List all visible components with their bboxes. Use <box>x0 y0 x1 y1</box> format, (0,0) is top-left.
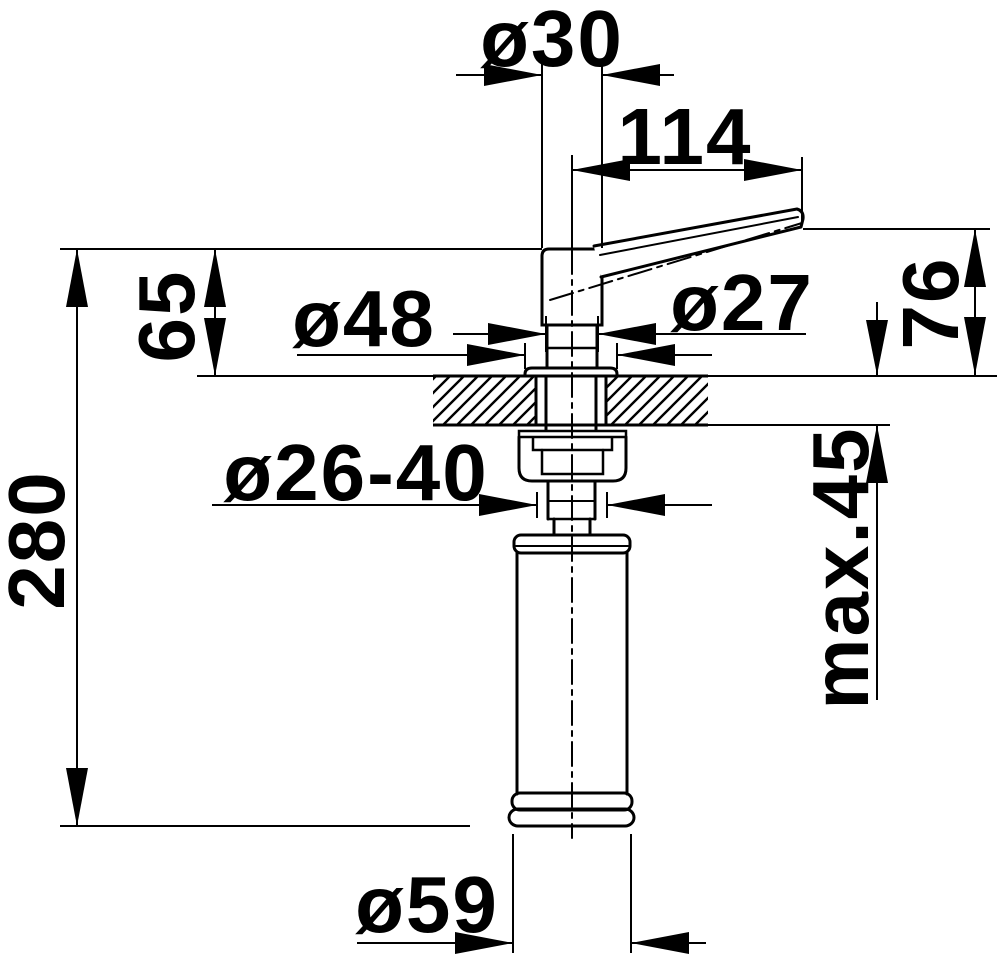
arrow-dia59-right <box>631 932 689 954</box>
dimension-labels: ø30 114 ø27 ø48 ø26-40 ø59 280 65 76 max… <box>0 0 975 949</box>
arrow-114-right <box>744 159 802 181</box>
label-spout-height-above-counter: 76 <box>886 257 975 350</box>
countertop-hatch-left <box>433 377 536 424</box>
label-max-counter-thickness: max.45 <box>796 426 885 709</box>
label-head-height: 65 <box>122 270 211 363</box>
label-overall-height: 280 <box>0 470 81 609</box>
arrow-280-bottom <box>66 768 88 826</box>
arrow-dia27-right <box>598 323 656 345</box>
label-flange-diameter: ø48 <box>292 274 436 363</box>
arrow-max45-down <box>866 320 888 375</box>
label-neck-diameter: ø27 <box>670 258 814 347</box>
label-bottle-diameter: ø59 <box>355 860 499 949</box>
arrow-dia48-right <box>617 344 675 366</box>
arrow-280-top <box>66 249 88 307</box>
arrow-dia27-left <box>488 323 546 345</box>
arrow-dia26-40-right <box>607 494 665 516</box>
label-spout-tube-diameter: ø30 <box>480 0 624 83</box>
countertop-hatch-right <box>606 377 708 424</box>
label-spout-reach: 114 <box>617 92 752 181</box>
technical-drawing-page: ø30 114 ø27 ø48 ø26-40 ø59 280 65 76 max… <box>0 0 1000 961</box>
countertop-section <box>433 376 708 425</box>
label-mounting-hole-diameter: ø26-40 <box>223 428 488 517</box>
arrow-dia48-left <box>467 344 525 366</box>
soap-dispenser-dimension-drawing: ø30 114 ø27 ø48 ø26-40 ø59 280 65 76 max… <box>0 0 1000 961</box>
